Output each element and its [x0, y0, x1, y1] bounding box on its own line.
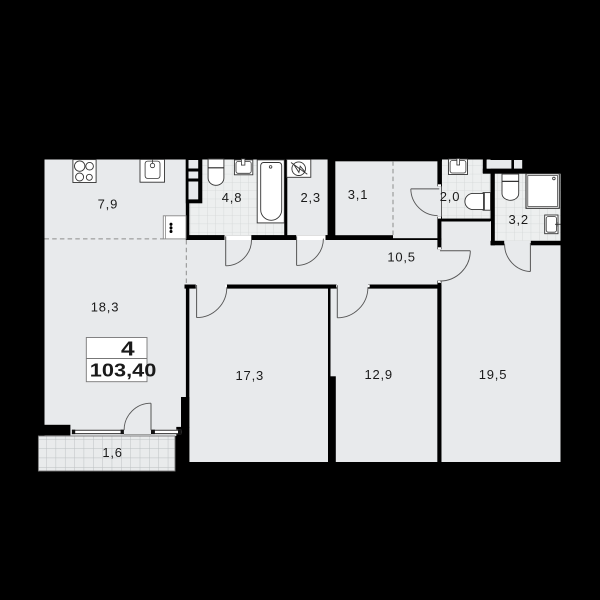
- svg-text:103,40: 103,40: [90, 360, 157, 381]
- svg-text:4,8: 4,8: [222, 190, 242, 205]
- svg-text:3,1: 3,1: [348, 187, 368, 202]
- svg-text:7,9: 7,9: [98, 196, 118, 211]
- svg-text:4: 4: [121, 339, 136, 361]
- svg-text:10,5: 10,5: [387, 250, 416, 265]
- svg-text:3,2: 3,2: [508, 212, 528, 227]
- svg-text:17,3: 17,3: [236, 368, 265, 383]
- svg-text:2,3: 2,3: [300, 190, 320, 205]
- svg-text:12,9: 12,9: [364, 367, 393, 382]
- svg-text:1,6: 1,6: [102, 445, 122, 460]
- svg-text:18,3: 18,3: [91, 300, 120, 315]
- svg-text:19,5: 19,5: [479, 367, 508, 382]
- svg-text:2,0: 2,0: [440, 189, 460, 204]
